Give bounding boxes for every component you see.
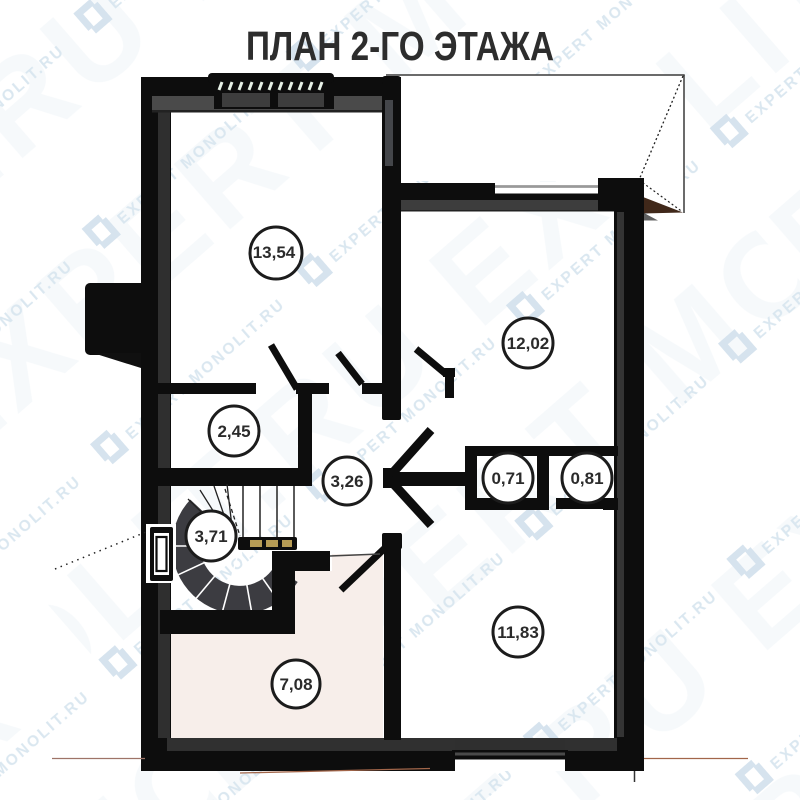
svg-text:3,26: 3,26 [330, 472, 363, 491]
svg-text:3,71: 3,71 [194, 527, 227, 546]
svg-text:ПЛАН 2-ГО ЭТАЖА: ПЛАН 2-ГО ЭТАЖА [246, 23, 554, 69]
svg-text:7,08: 7,08 [279, 675, 312, 694]
svg-text:2,45: 2,45 [217, 422, 250, 441]
svg-text:0,71: 0,71 [491, 469, 524, 488]
svg-text:13,54: 13,54 [253, 243, 296, 262]
svg-text:12,02: 12,02 [507, 334, 550, 353]
svg-text:0,81: 0,81 [570, 469, 603, 488]
svg-text:11,83: 11,83 [497, 623, 539, 642]
